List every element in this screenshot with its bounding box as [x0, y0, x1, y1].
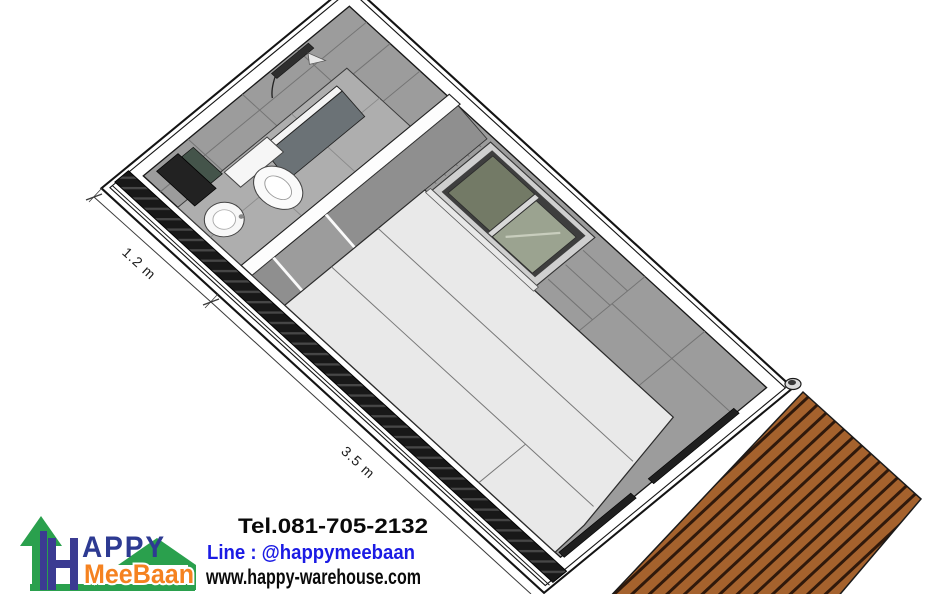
contact-line: Line : @happymeebaan — [207, 542, 415, 564]
extension-line-2 — [205, 294, 218, 308]
render-canvas: 1.2 m 3.5 m APPY MeeBaan Tel.081-705-213… — [0, 0, 933, 594]
logo: APPY MeeBaan — [20, 516, 196, 591]
dimension-tick-2 — [203, 299, 219, 305]
dimension-tick-1 — [86, 194, 102, 200]
logo-word-meebaan: MeeBaan — [84, 559, 194, 589]
corner-casting — [785, 379, 801, 390]
contact-website: www.happy-warehouse.com — [205, 566, 421, 589]
logo-h-thin-bar — [40, 531, 47, 590]
scene-svg: 1.2 m 3.5 m APPY MeeBaan Tel.081-705-213… — [0, 0, 933, 594]
contact-phone: Tel.081-705-2132 — [238, 515, 428, 538]
logo-letter-h — [48, 538, 78, 590]
